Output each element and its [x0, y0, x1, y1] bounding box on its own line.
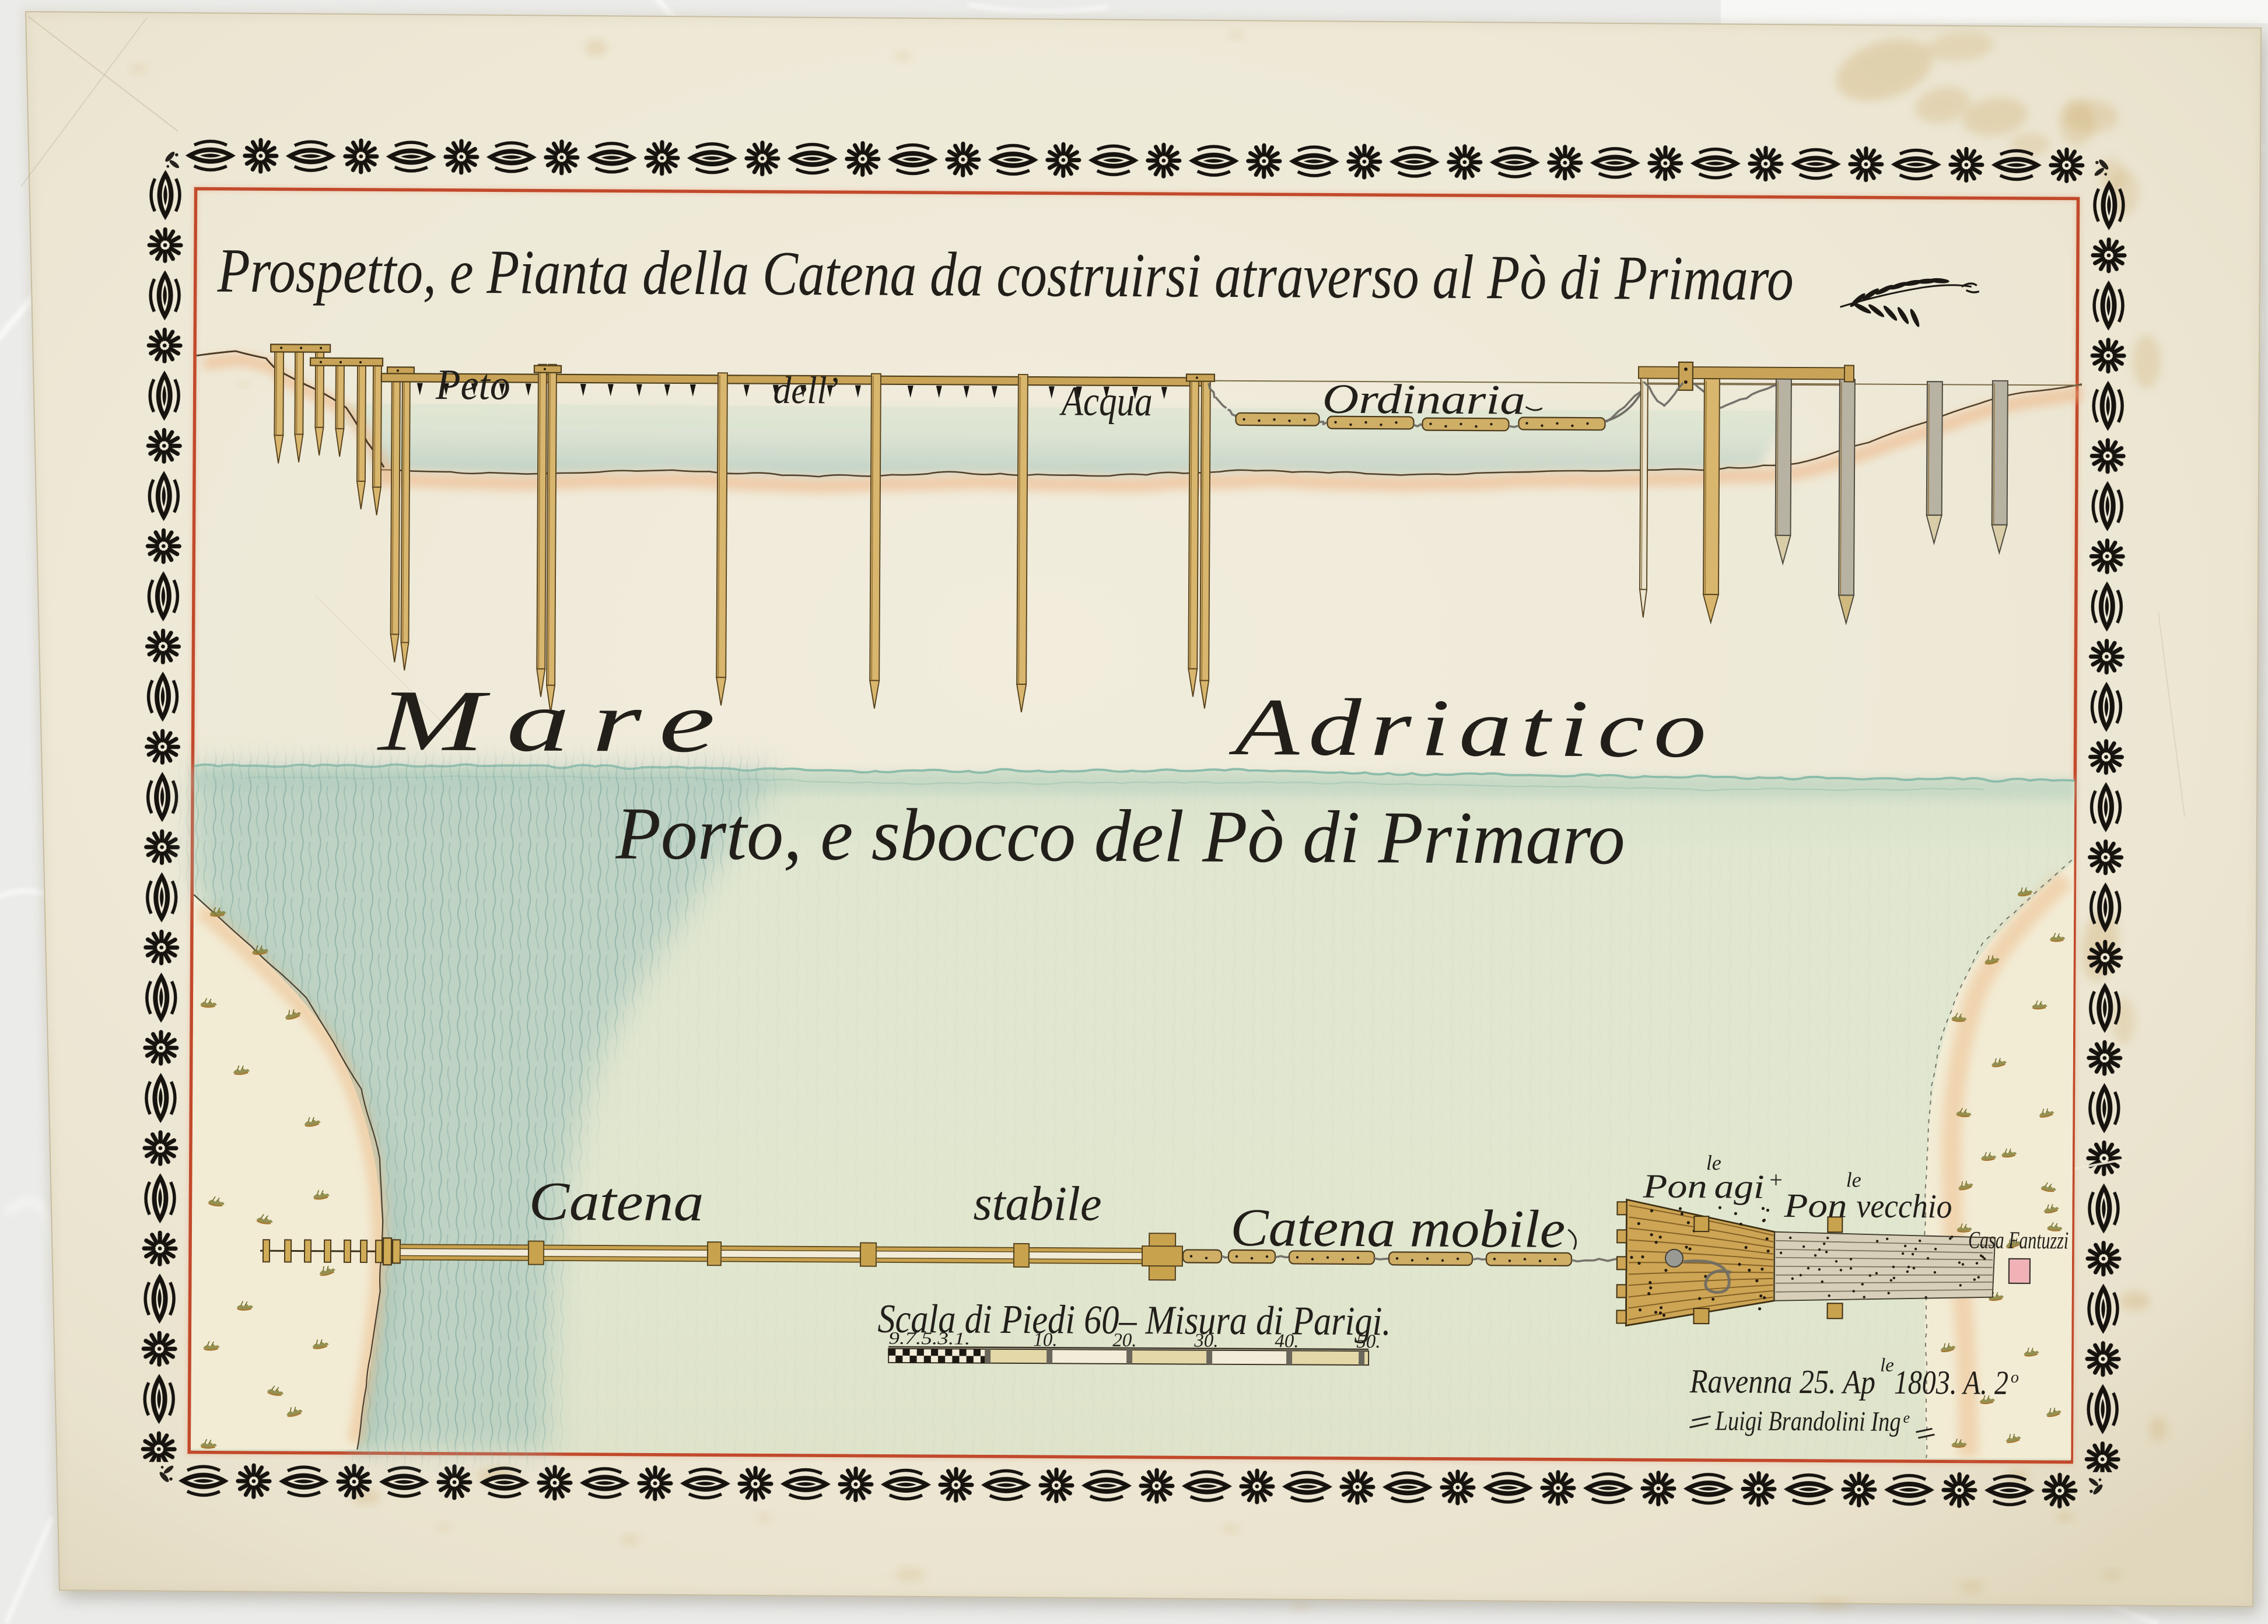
svg-text:9.7.5.3.1.: 9.7.5.3.1.	[888, 1329, 970, 1349]
svg-text:+: +	[1768, 1167, 1784, 1193]
svg-text:e: e	[1903, 1409, 1910, 1426]
svg-text:Ravenna 25. Ap: Ravenna 25. Ap	[1689, 1362, 1875, 1401]
svg-text:Catena mobile: Catena mobile	[1230, 1198, 1566, 1259]
svg-text:Pon: Pon	[1783, 1186, 1847, 1225]
svg-text:Peto: Peto	[435, 361, 510, 409]
svg-text:Adriatico: Adriatico	[1228, 682, 1716, 775]
svg-text:Luigi Brandolini Ing: Luigi Brandolini Ing	[1715, 1405, 1901, 1437]
svg-text:Mare: Mare	[376, 672, 737, 771]
svg-text:agi: agi	[1714, 1167, 1764, 1205]
svg-text:Catena: Catena	[528, 1171, 704, 1233]
svg-text:Acqua: Acqua	[1059, 377, 1153, 425]
svg-text:le: le	[1880, 1355, 1894, 1376]
svg-text:Porto, e sbocco del Pò di Prim: Porto, e sbocco del Pò di Primaro	[615, 792, 1625, 880]
svg-text:30.: 30.	[1193, 1331, 1218, 1352]
svg-text:o: o	[2011, 1368, 2019, 1387]
svg-text:Prospetto, e Pianta della Cate: Prospetto, e Pianta della Catena da cost…	[217, 236, 1794, 314]
svg-text:vecchio: vecchio	[1856, 1186, 1952, 1225]
svg-text:40.: 40.	[1275, 1331, 1298, 1352]
svg-text:Ordinaria: Ordinaria	[1322, 376, 1525, 423]
svg-text:20.: 20.	[1112, 1330, 1136, 1351]
svg-text:Pon: Pon	[1642, 1167, 1707, 1206]
svg-text:dell’: dell’	[773, 369, 839, 412]
svg-text:Casa Fantuzzi: Casa Fantuzzi	[1968, 1227, 2068, 1254]
svg-text:stabile: stabile	[973, 1177, 1101, 1231]
svg-text:10.: 10.	[1033, 1329, 1057, 1350]
svg-text:50.: 50.	[1356, 1331, 1380, 1352]
svg-text:1803. A. 2: 1803. A. 2	[1894, 1363, 2008, 1402]
